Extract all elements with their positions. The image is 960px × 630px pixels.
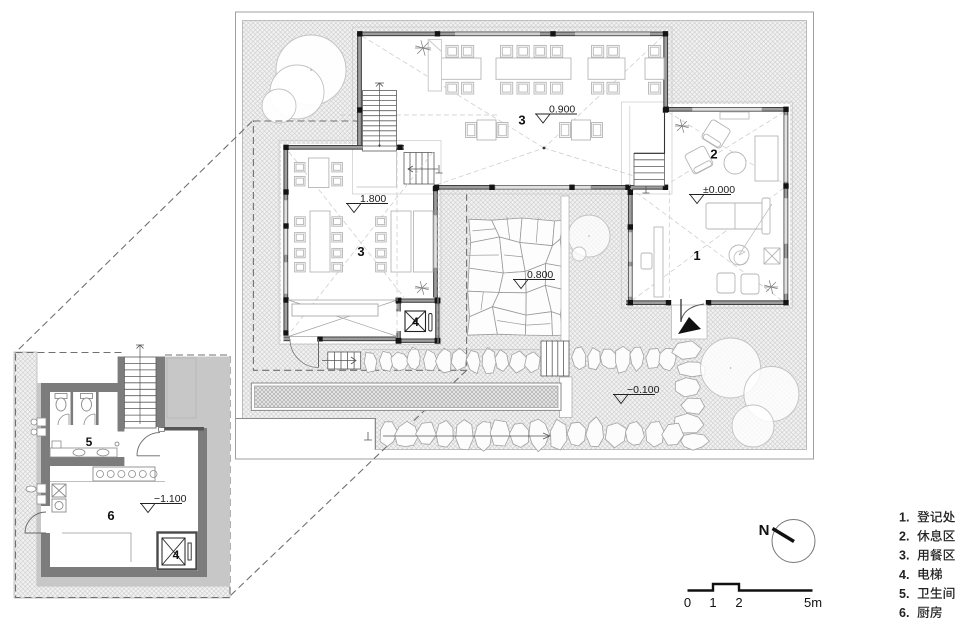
svg-text:2: 2 <box>710 147 717 162</box>
svg-text:5m: 5m <box>804 595 822 610</box>
svg-text:6.: 6. <box>899 606 909 620</box>
svg-text:3: 3 <box>518 113 525 128</box>
svg-text:2: 2 <box>735 595 742 610</box>
svg-text:2.: 2. <box>899 530 909 544</box>
svg-text:1.: 1. <box>899 511 909 525</box>
svg-text:4: 4 <box>412 315 419 329</box>
svg-text:3: 3 <box>357 244 364 259</box>
svg-text:3.: 3. <box>899 549 909 563</box>
svg-text:5.: 5. <box>899 587 909 601</box>
svg-text:4: 4 <box>173 548 180 562</box>
svg-text:4.: 4. <box>899 568 909 582</box>
svg-text:5: 5 <box>86 435 93 449</box>
svg-text:N: N <box>759 522 770 539</box>
svg-text:6: 6 <box>107 508 114 523</box>
svg-text:0: 0 <box>684 595 691 610</box>
svg-text:1: 1 <box>709 595 716 610</box>
svg-text:1: 1 <box>693 248 700 263</box>
